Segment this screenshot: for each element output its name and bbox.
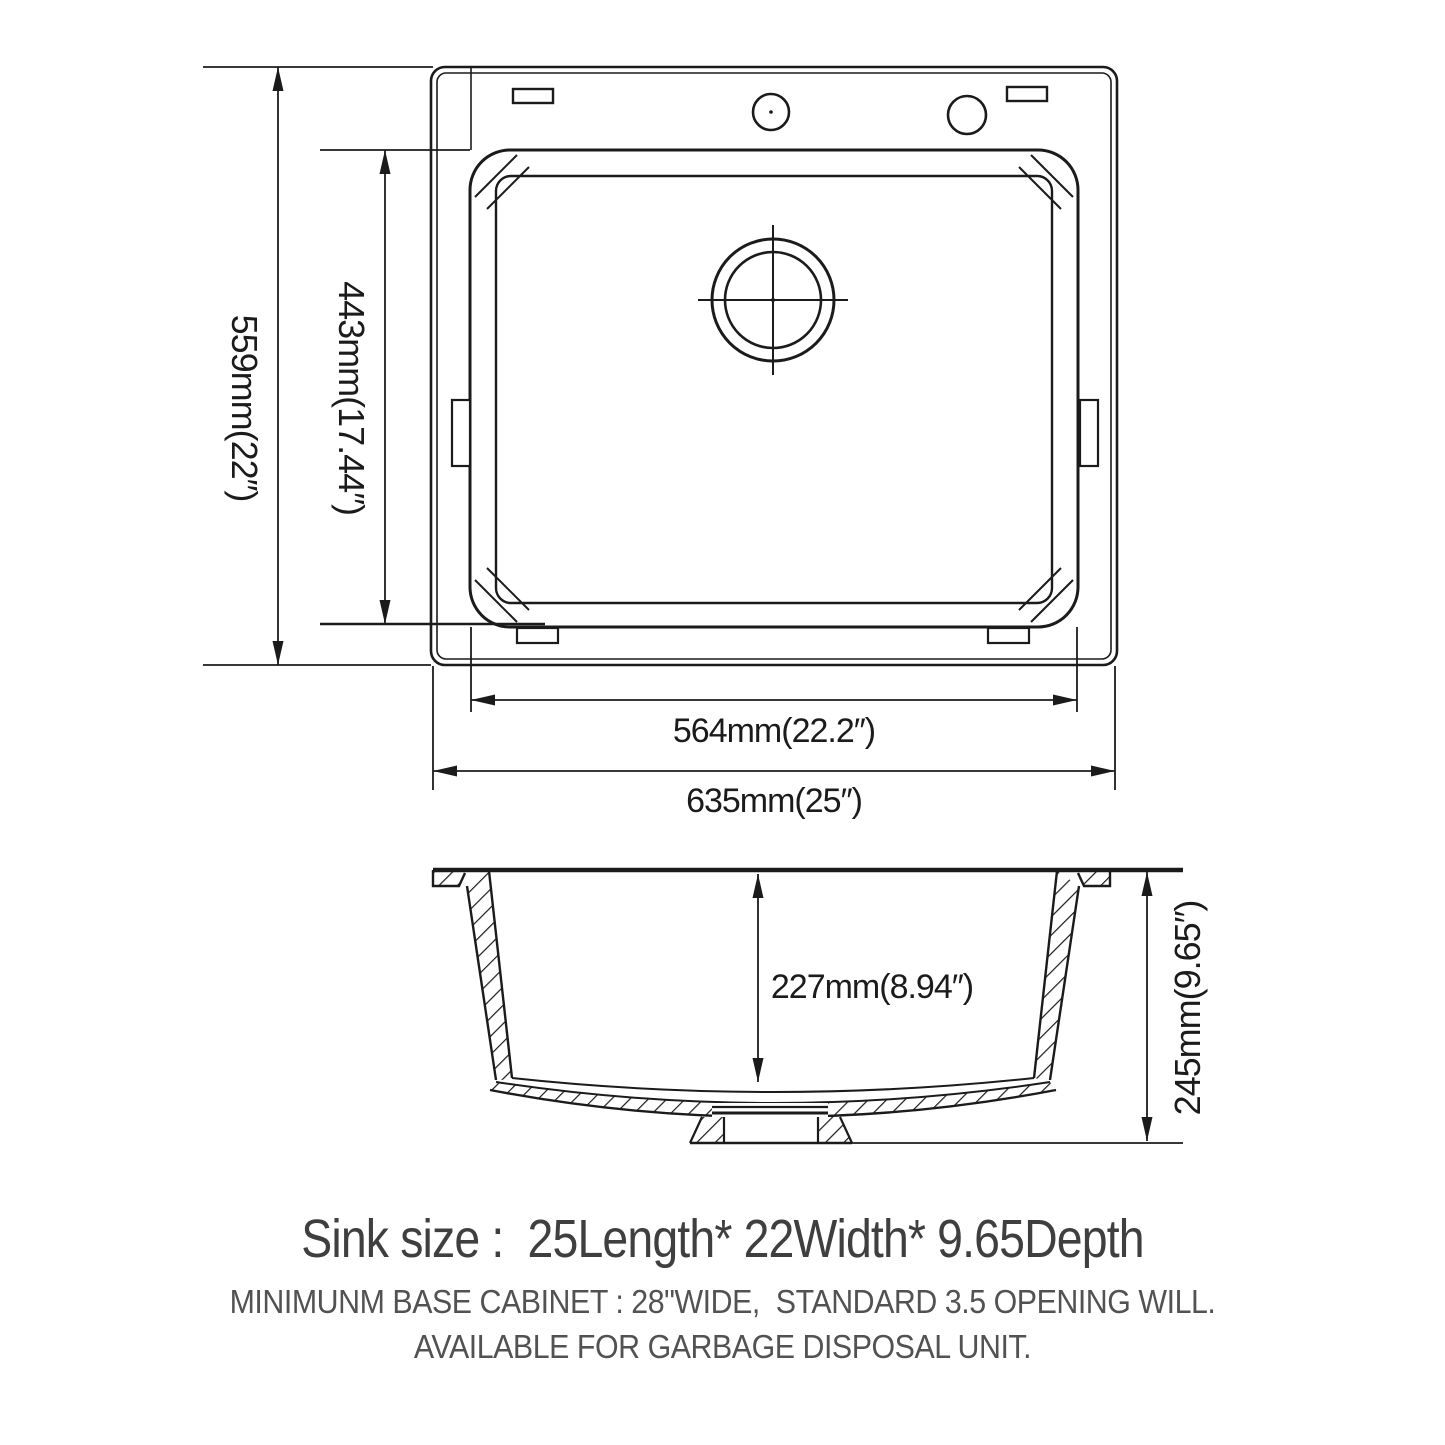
dim-overall-length-label: 635mm(25″) — [686, 782, 862, 820]
clip-bottom-right — [988, 628, 1029, 643]
dim-bowl-length-label: 564mm(22.2″) — [673, 712, 875, 750]
garbage-disposal-note: AVAILABLE FOR GARBAGE DISPOSAL UNIT. — [58, 1328, 1387, 1366]
dim-bowl-length — [471, 627, 1077, 712]
drain-boss — [690, 1107, 852, 1143]
dim-overall-depth — [1142, 872, 1153, 1141]
wall-right — [1034, 871, 1079, 1081]
base-cabinet-note: MINIMUNM BASE CABINET : 28"WIDE, STANDAR… — [58, 1283, 1387, 1321]
dim-bowl-depth — [753, 874, 764, 1082]
deck-slot-right — [1007, 87, 1047, 101]
sink-dimension-drawing-page: 559mm(22″) 443mm(17.44″) 564mm(22.2″) 63… — [0, 0, 1445, 1445]
wall-left — [467, 871, 512, 1081]
deck-slot-left — [513, 89, 553, 103]
clip-left — [452, 400, 470, 466]
faucet-hole-right-icon — [948, 96, 986, 134]
dim-overall-width-label: 559mm(22″) — [224, 315, 265, 502]
mounting-clips — [452, 400, 1098, 643]
dim-bowl-depth-label: 227mm(8.94″) — [771, 968, 973, 1006]
bowl-rim-outer — [470, 150, 1078, 627]
clip-right — [1080, 400, 1098, 466]
side-view — [433, 870, 1183, 1143]
dim-bowl-width-label: 443mm(17.44″) — [331, 281, 372, 515]
drain-icon — [698, 225, 848, 375]
faucet-hole-center-dot — [769, 110, 773, 114]
drain-recess-mask — [712, 1103, 828, 1118]
top-view — [431, 67, 1117, 665]
clip-bottom-left — [517, 628, 558, 643]
dim-overall-depth-label: 245mm(9.65″) — [1167, 901, 1208, 1116]
sink-size-heading: Sink size : 25Length* 22Width* 9.65Depth — [101, 1208, 1344, 1270]
